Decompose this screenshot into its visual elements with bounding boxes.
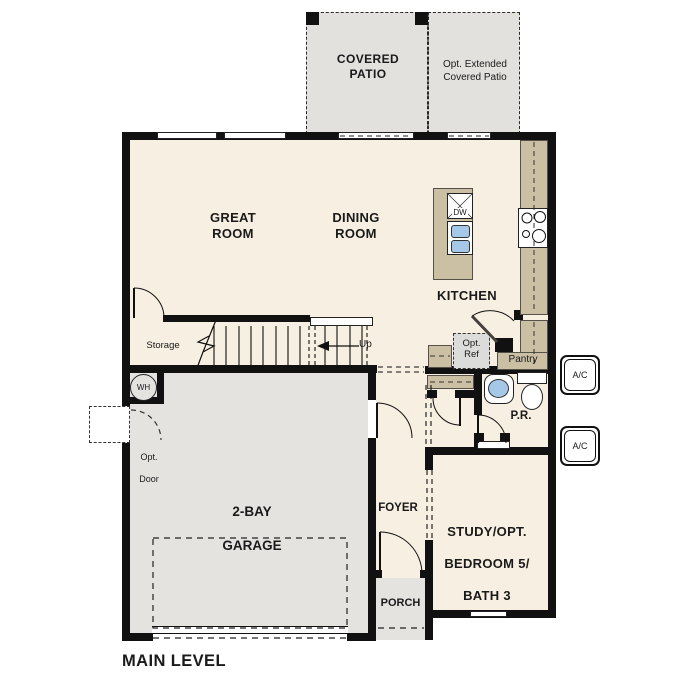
powder-room-label: P.R. (500, 410, 542, 422)
bathroom-sink-icon (484, 374, 514, 404)
kitchen-label: KITCHEN (428, 288, 506, 304)
pantry-label: Pantry (500, 354, 546, 365)
porch-label: PORCH (376, 597, 425, 609)
opt-ref-label: Opt. (454, 338, 489, 349)
window (157, 132, 217, 139)
wall (163, 315, 310, 322)
sink-basin (488, 379, 509, 398)
garage-door (152, 626, 348, 634)
great-room-label: GREAT ROOM (188, 210, 278, 242)
patio-post (306, 12, 319, 25)
wall (122, 132, 130, 641)
ac-unit: A/C (560, 355, 600, 395)
garage-entry-opening (368, 400, 376, 438)
wall (122, 365, 377, 373)
patio-post (415, 12, 428, 25)
main-level-title: MAIN LEVEL (122, 652, 252, 671)
wall (455, 390, 474, 398)
garage-label: 2-BAY GARAGE (203, 486, 301, 571)
porch-floor (376, 578, 425, 640)
study-label: STUDY/OPT. BEDROOM 5/ BATH 3 (424, 508, 550, 620)
wall (368, 570, 382, 578)
sliding-door (447, 132, 491, 139)
wall (495, 338, 513, 352)
sink-basin (451, 225, 470, 238)
sliding-door (338, 132, 414, 139)
window (224, 132, 286, 139)
toilet-bowl-icon (521, 384, 543, 410)
water-heater-label: WH (137, 383, 150, 392)
wall (347, 633, 376, 641)
wall (122, 633, 153, 641)
opt-door-swing-box (89, 406, 130, 443)
opt-ref-label: Ref (454, 349, 489, 360)
dishwasher-label: DW (449, 199, 471, 217)
wall (425, 447, 433, 470)
foyer-label: FOYER (373, 502, 423, 514)
cooktop-icon (518, 208, 548, 248)
hall-cabinet (427, 375, 474, 389)
foyer-floor (376, 455, 425, 578)
wall (474, 367, 482, 415)
ac-label: A/C (572, 370, 587, 380)
base-cabinet (428, 345, 452, 368)
ac-unit: A/C (560, 426, 600, 466)
wall (427, 390, 437, 398)
toilet-tank-icon (517, 372, 547, 384)
floor-plan: WH Opt. Ref A/C A/C (0, 0, 687, 687)
covered-patio-label: COVERED PATIO (322, 52, 414, 82)
up-label: Up (359, 339, 381, 350)
storage-label: Storage (139, 340, 187, 351)
wall-niche (477, 441, 510, 449)
sink-basin (451, 240, 470, 253)
opt-door-label: Opt. Door (131, 441, 167, 496)
stair-railing (310, 317, 373, 326)
opt-ref-box: Opt. Ref (453, 333, 490, 369)
kitchen-sink-icon (447, 221, 473, 255)
ac-label: A/C (572, 441, 587, 451)
opt-extended-patio-label: Opt. Extended Covered Patio (432, 58, 518, 84)
water-heater-icon: WH (130, 374, 157, 401)
dining-room-label: DINING ROOM (311, 210, 401, 242)
